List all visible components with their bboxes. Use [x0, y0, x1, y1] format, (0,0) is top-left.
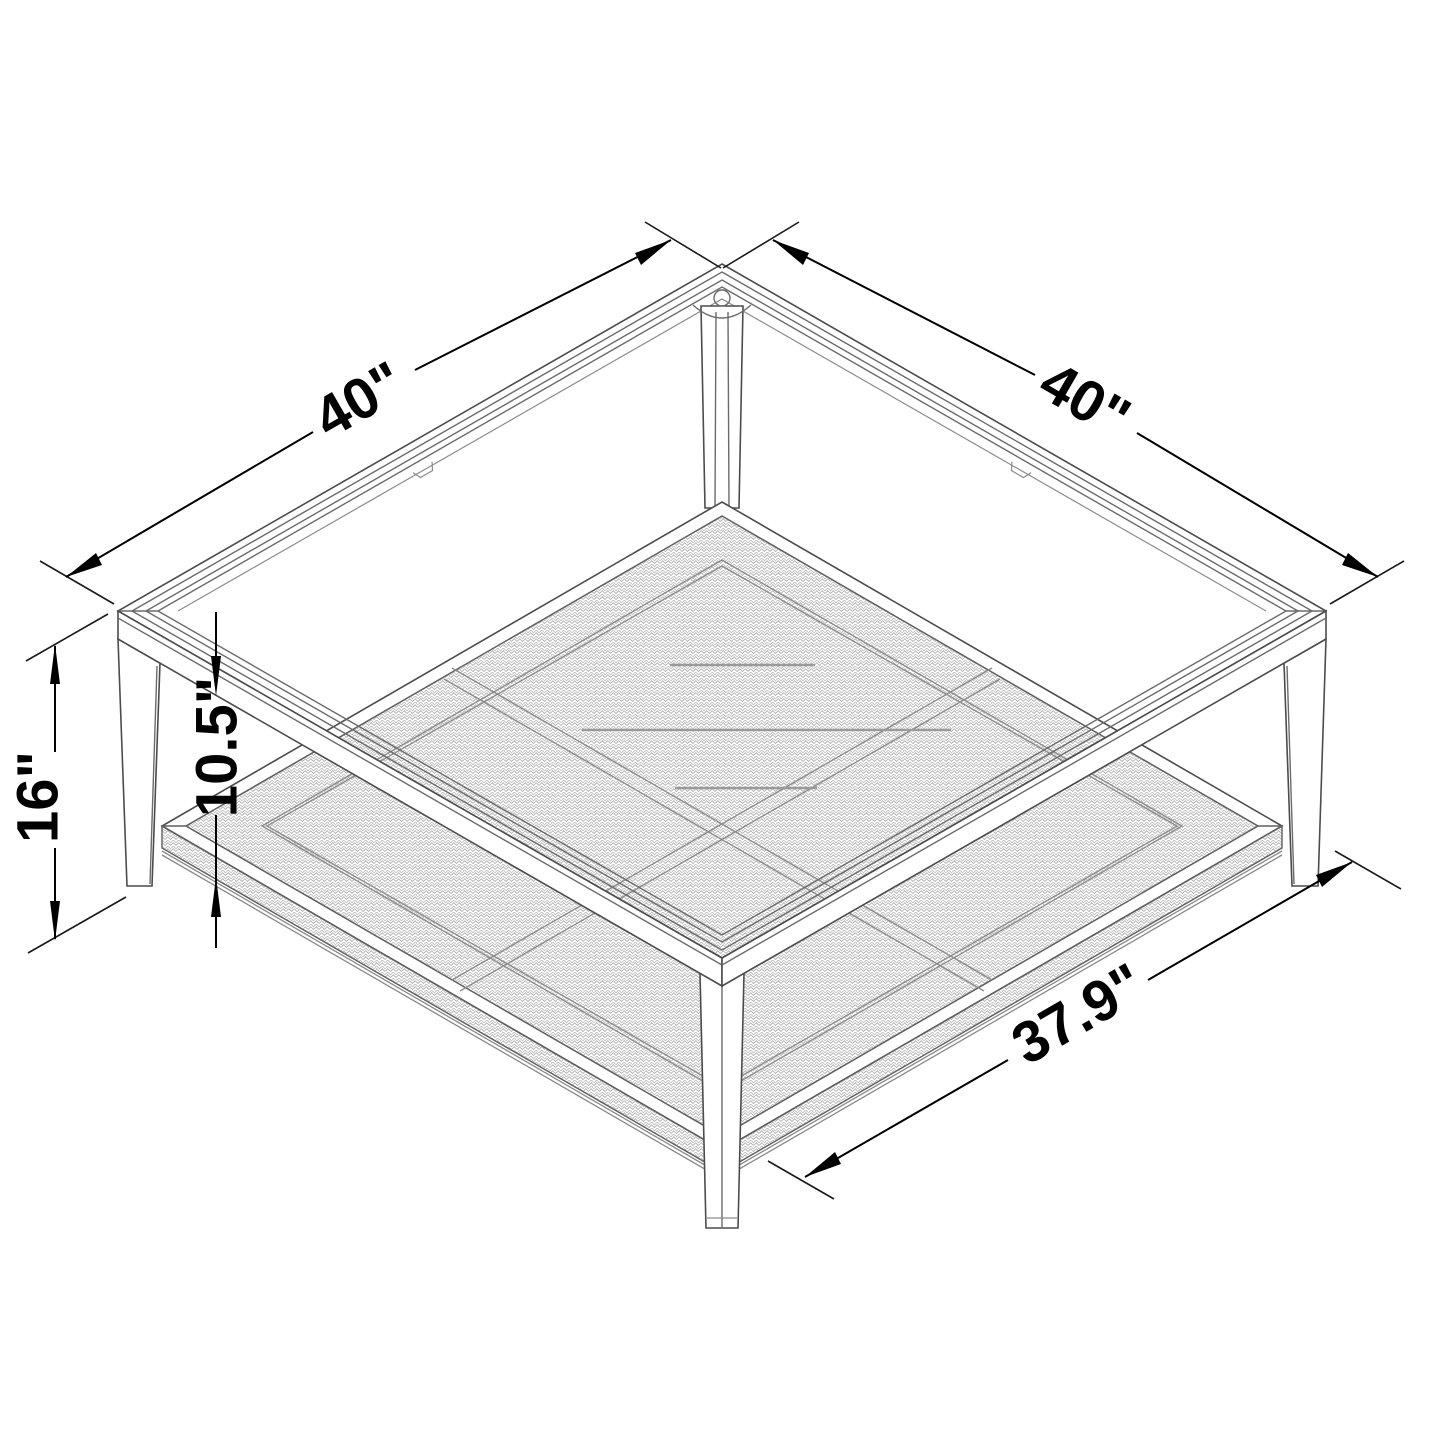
leg-front: [700, 973, 744, 1228]
dimension-overall-height: 16": [6, 614, 127, 953]
arrowhead: [211, 877, 221, 917]
arrowhead: [66, 553, 102, 577]
glass-clip-right: [1008, 462, 1031, 480]
arrowhead: [635, 240, 671, 265]
arrowhead: [1342, 553, 1378, 577]
dim-label-top-right: 40": [1029, 349, 1141, 451]
leg-back: [693, 290, 751, 508]
dim-label-top-left: 40": [303, 349, 415, 451]
glass-clip-left: [413, 462, 436, 480]
arrowhead: [50, 644, 60, 684]
coffee-table-dimension-diagram: 40" 40" 16" 10.5" 37.9": [0, 0, 1445, 1445]
arrowhead: [805, 1152, 841, 1177]
dim-label-clearance: 10.5": [185, 677, 250, 817]
diagram-svg: 40" 40" 16" 10.5" 37.9": [0, 0, 1445, 1445]
leg-right: [1284, 639, 1326, 886]
table-drawing: [118, 264, 1326, 1228]
leg-left: [118, 639, 160, 886]
arrowhead: [1316, 862, 1352, 887]
dimension-top-left-edge: 40": [40, 222, 721, 604]
dim-label-height: 16": [6, 751, 71, 843]
dimension-top-right-edge: 40": [723, 222, 1404, 604]
arrowhead: [773, 240, 809, 265]
